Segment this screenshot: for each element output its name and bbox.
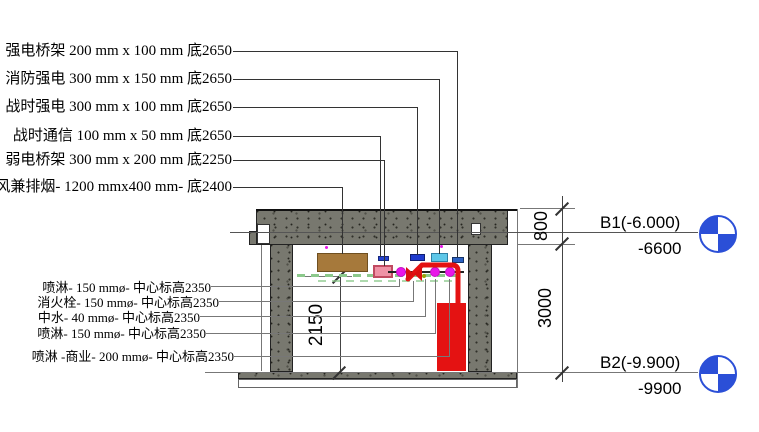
dimension-2150: 2150 <box>293 301 341 349</box>
level-b1-label: B1(-6.000) <box>600 213 680 233</box>
pipe-annotation: 喷淋- 150 mmø- 中心标高2350 <box>37 326 206 341</box>
level-target-icon <box>699 355 737 393</box>
dimension-800: 800 <box>519 204 563 248</box>
slab-top-edge <box>256 209 517 211</box>
dimension-3000: 3000 <box>523 286 567 330</box>
pipe-annotation: 喷淋 -商业- 200 mmø- 中心标高2350 <box>32 349 234 364</box>
left-wall <box>270 244 293 372</box>
slab-right-notch <box>471 223 481 235</box>
pipe-annotation: 消火栓- 150 mmø- 中心标高2350 <box>37 295 219 310</box>
cable-tray-annotation: 战时通信 100 mm x 50 mm 底2650 <box>13 128 232 145</box>
level-target-icon <box>699 215 737 253</box>
right-wall <box>468 244 492 372</box>
pipe-annotation: 喷淋- 150 mmø- 中心标高2350 <box>42 280 211 295</box>
level-b1-elevation: -6600 <box>638 239 681 259</box>
floor-slab <box>238 372 517 379</box>
sprinkler-head-dot <box>440 245 443 248</box>
fire-pipe-run <box>398 256 470 316</box>
right-boundary-line <box>517 209 518 388</box>
cable-tray-annotation: 弱电桥架 300 mm x 200 mm 底2250 <box>5 152 232 169</box>
cable-tray-annotation: 战时强电 300 mm x 100 mm 底2650 <box>5 99 232 116</box>
slab-left-notch <box>257 224 270 244</box>
section-drawing: 800 3000 2150 强电桥架 200 mm x 1 <box>0 0 759 432</box>
left-face-line <box>261 245 262 371</box>
slab-left-stub <box>249 231 257 245</box>
level-b2-elevation: -9900 <box>638 379 681 399</box>
level-b2-label: B2(-9.900) <box>600 353 680 373</box>
cable-tray-annotation: 强电桥架 200 mm x 100 mm 底2650 <box>5 43 232 60</box>
sprinkler-head-dot <box>325 246 328 249</box>
floor-outline <box>238 379 517 388</box>
cable-tray-annotation: 消防强电 300 mm x 150 mm 底2650 <box>5 71 232 88</box>
exhaust-duct <box>317 253 368 272</box>
pipe-annotation: 中水- 40 mmø- 中心标高2350 <box>38 310 200 325</box>
duct-annotation: 排风兼排烟- 1200 mmx400 mm- 底2400 <box>0 179 232 196</box>
